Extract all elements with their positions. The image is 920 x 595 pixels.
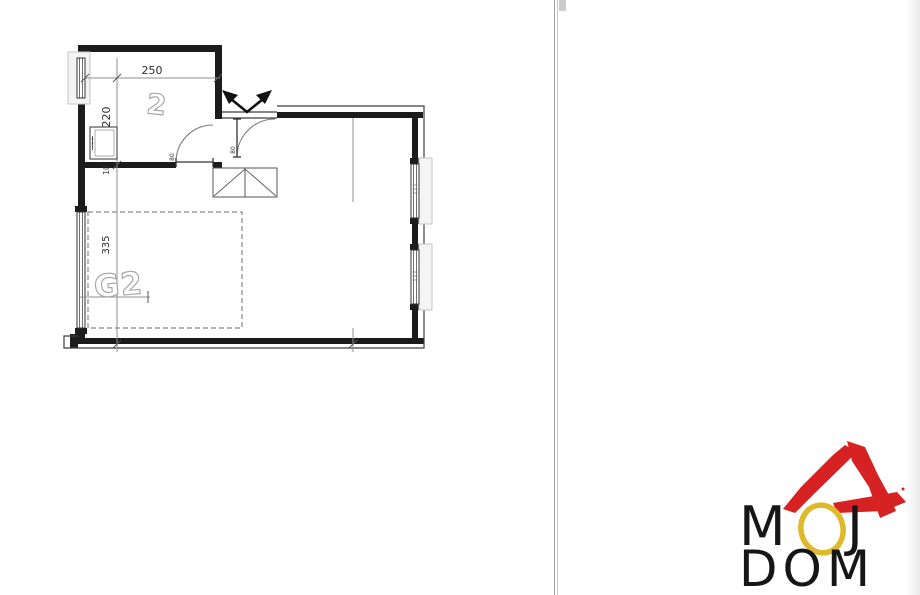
g2-label: G2 xyxy=(93,265,145,305)
outer-boundary xyxy=(64,106,424,348)
wall-room2-right xyxy=(215,45,222,119)
vertical-divider-line xyxy=(554,0,555,595)
wall-right-lower xyxy=(412,310,418,338)
divider-top-mark xyxy=(559,0,566,11)
wall-bottom xyxy=(78,338,424,344)
moj-dom-logo: M J DOM xyxy=(735,435,915,593)
dim-220: 220 xyxy=(100,107,113,128)
dim-250: 250 xyxy=(142,64,163,77)
wall-room2-top xyxy=(78,45,222,52)
logo-word-dom: DOM xyxy=(739,540,875,593)
wall-right-middle xyxy=(412,224,418,244)
window-right-upper-outer-frame xyxy=(419,158,432,224)
boundary-line xyxy=(64,106,424,348)
wall-door-pier xyxy=(213,162,222,168)
doors: 80 80 xyxy=(169,119,275,167)
floor-plan: 250 220 335 10 2 G2 80 80 xyxy=(0,0,460,370)
dim-10: 10 xyxy=(102,165,111,175)
entry-arrow-icon xyxy=(222,90,272,112)
window-main-right-lower xyxy=(411,250,419,304)
dim-335: 335 xyxy=(101,235,112,254)
wall-left-middle xyxy=(78,100,85,212)
wall-room2-bottom xyxy=(78,162,176,168)
door-room2-size: 80 xyxy=(169,153,176,161)
vertical-divider-line-2 xyxy=(557,0,558,595)
wall-right-upper xyxy=(412,118,418,158)
window-right-lower-outer-frame xyxy=(419,244,432,310)
window-main-right-upper xyxy=(411,164,419,218)
sink-symbol xyxy=(90,127,117,159)
door-room2-arc xyxy=(176,125,213,162)
window-room2-left xyxy=(77,58,85,98)
door-entry-arc xyxy=(237,119,275,157)
window-main-left xyxy=(77,212,85,328)
door-entry-size: 80 xyxy=(230,146,237,154)
logo-roof-icon xyxy=(783,441,906,518)
page: 250 220 335 10 2 G2 80 80 xyxy=(0,0,920,595)
wall-main-top xyxy=(277,112,423,118)
wardrobe-symbol xyxy=(213,168,277,197)
room2-label: 2 xyxy=(145,87,168,122)
